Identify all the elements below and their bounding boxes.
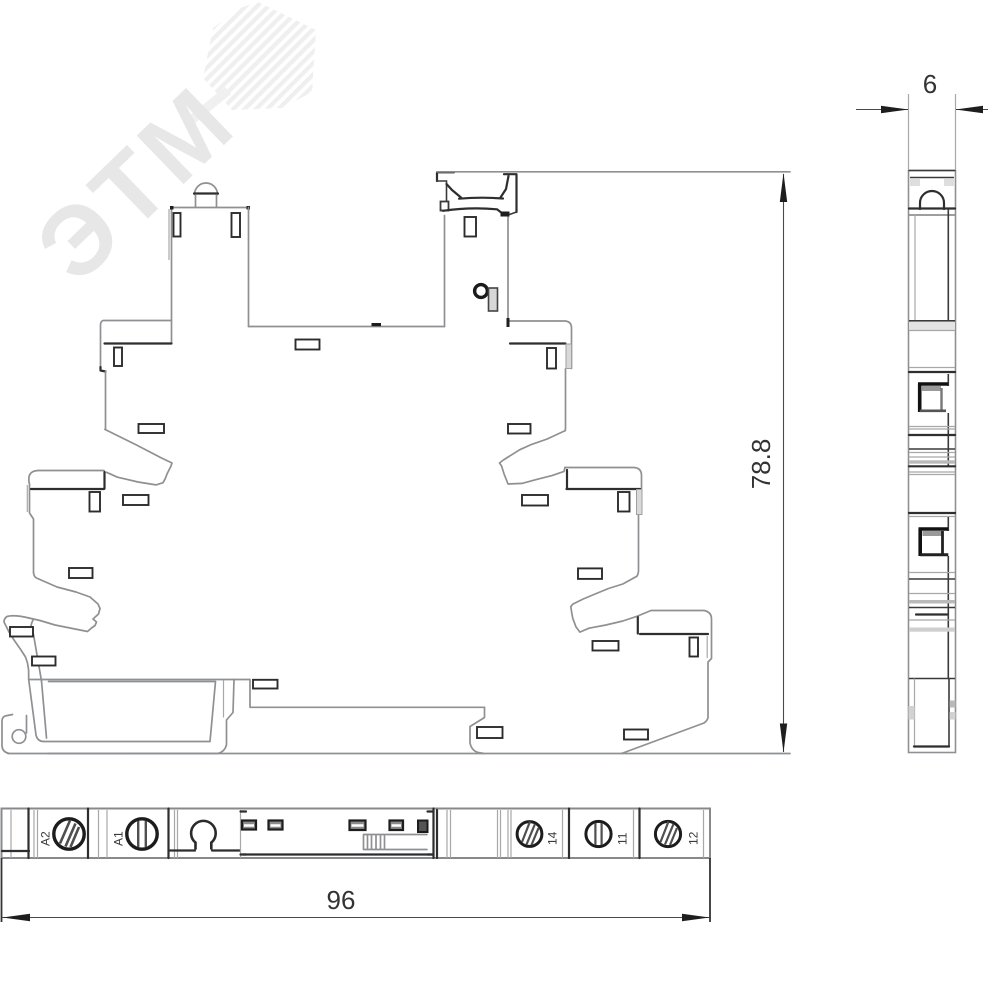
svg-text:A1: A1	[112, 831, 126, 846]
svg-text:A2: A2	[39, 831, 53, 846]
svg-text:14: 14	[546, 831, 560, 845]
svg-text:96: 96	[327, 885, 356, 915]
svg-text:12: 12	[687, 831, 701, 845]
svg-text:11: 11	[616, 832, 630, 845]
svg-text:6: 6	[923, 69, 937, 99]
svg-text:78.8: 78.8	[746, 439, 776, 490]
